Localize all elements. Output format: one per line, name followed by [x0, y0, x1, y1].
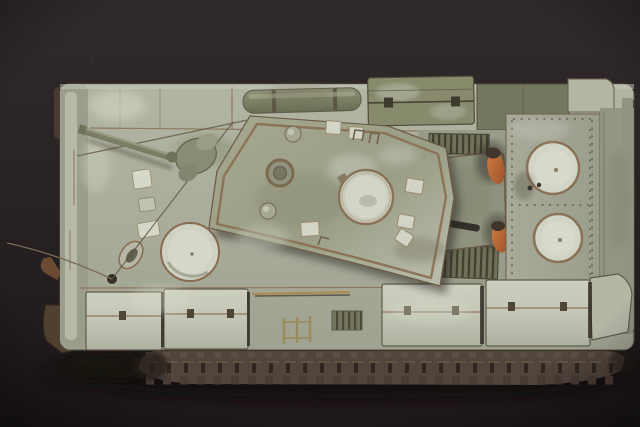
scene-svg: Overhead photograph of a weathered milit… — [0, 0, 640, 427]
vignette — [0, 0, 640, 427]
photo-figure: Overhead photograph of a weathered milit… — [0, 0, 640, 427]
photo-stage: Overhead photograph of a weathered milit… — [0, 0, 640, 427]
